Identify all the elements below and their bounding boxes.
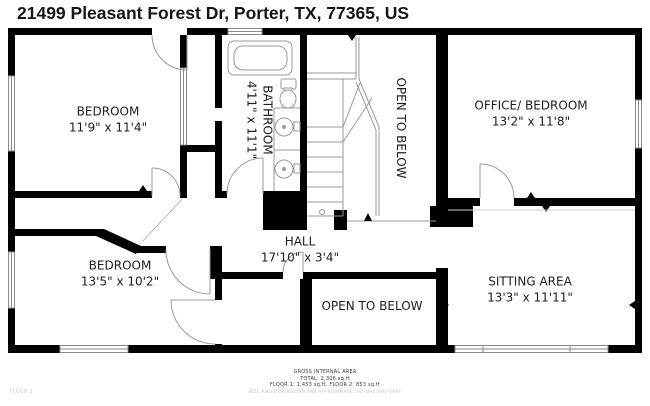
room-label-bedroom-top-left: BEDROOM 11'9" x 11'4" bbox=[69, 104, 147, 135]
bathroom-door bbox=[227, 158, 263, 194]
sink-icon bbox=[275, 160, 300, 178]
closet-door bbox=[171, 300, 215, 344]
room-name: OFFICE/ BEDROOM bbox=[474, 98, 587, 114]
toilet-icon bbox=[280, 79, 296, 108]
room-name: OPEN TO BELOW bbox=[321, 299, 422, 315]
sink-icon bbox=[275, 118, 300, 136]
room-name: BATHROOM bbox=[259, 81, 275, 159]
room-name: BEDROOM bbox=[69, 104, 147, 120]
room-dims: 11'9" x 11'4" bbox=[69, 120, 147, 136]
room-name: SITTING AREA bbox=[487, 274, 573, 290]
footer-area-summary: GROSS INTERNAL AREA TOTAL: 2,306 sq.ft F… bbox=[0, 370, 650, 396]
room-name: BEDROOM bbox=[81, 258, 159, 274]
floorplan-page: 21499 Pleasant Forest Dr, Porter, TX, 77… bbox=[0, 0, 650, 406]
room-label-bedroom-bottom-left: BEDROOM 13'5" x 10'2" bbox=[81, 258, 159, 289]
gross-internal-area-title: GROSS INTERNAL AREA bbox=[0, 370, 650, 376]
office-door bbox=[480, 164, 514, 198]
floor-areas: FLOOR 1: 1,453 sq.ft, FLOOR 2: 853 sq.ft bbox=[0, 383, 650, 389]
room-dims: 13'3" x 11'11" bbox=[487, 290, 573, 306]
floor-label: FLOOR 2 bbox=[10, 390, 33, 395]
bathtub-icon bbox=[228, 41, 292, 75]
room-label-sitting-area: SITTING AREA 13'3" x 11'11" bbox=[487, 274, 573, 305]
stairs-icon bbox=[307, 37, 436, 221]
room-label-hall: HALL 17'10" x 3'4" bbox=[261, 234, 339, 265]
floorplan-drawing bbox=[0, 0, 650, 406]
bedroom-top-left-door bbox=[152, 168, 180, 196]
doors bbox=[152, 35, 514, 344]
room-name: OPEN TO BELOW bbox=[392, 77, 408, 178]
room-label-open-to-below-bottom: OPEN TO BELOW bbox=[321, 299, 422, 315]
closet-slider-door bbox=[181, 68, 187, 145]
room-name: HALL bbox=[261, 234, 339, 250]
bedroom-bottom-left-door bbox=[166, 250, 210, 294]
room-dims: 4'11" x 11'1" bbox=[243, 81, 259, 159]
room-dims: 13'5" x 10'2" bbox=[81, 274, 159, 290]
room-label-open-to-below-top: OPEN TO BELOW bbox=[392, 77, 408, 178]
room-dims: 13'2" x 11'8" bbox=[474, 114, 587, 130]
disclaimer: SIZE AND DIMENSIONS ARE APPROXIMATE, ACT… bbox=[0, 390, 650, 395]
room-dims: 17'10" x 3'4" bbox=[261, 250, 339, 266]
room-label-bathroom: BATHROOM 4'11" x 11'1" bbox=[243, 81, 274, 159]
room-label-office-bedroom: OFFICE/ BEDROOM 13'2" x 11'8" bbox=[474, 98, 587, 129]
